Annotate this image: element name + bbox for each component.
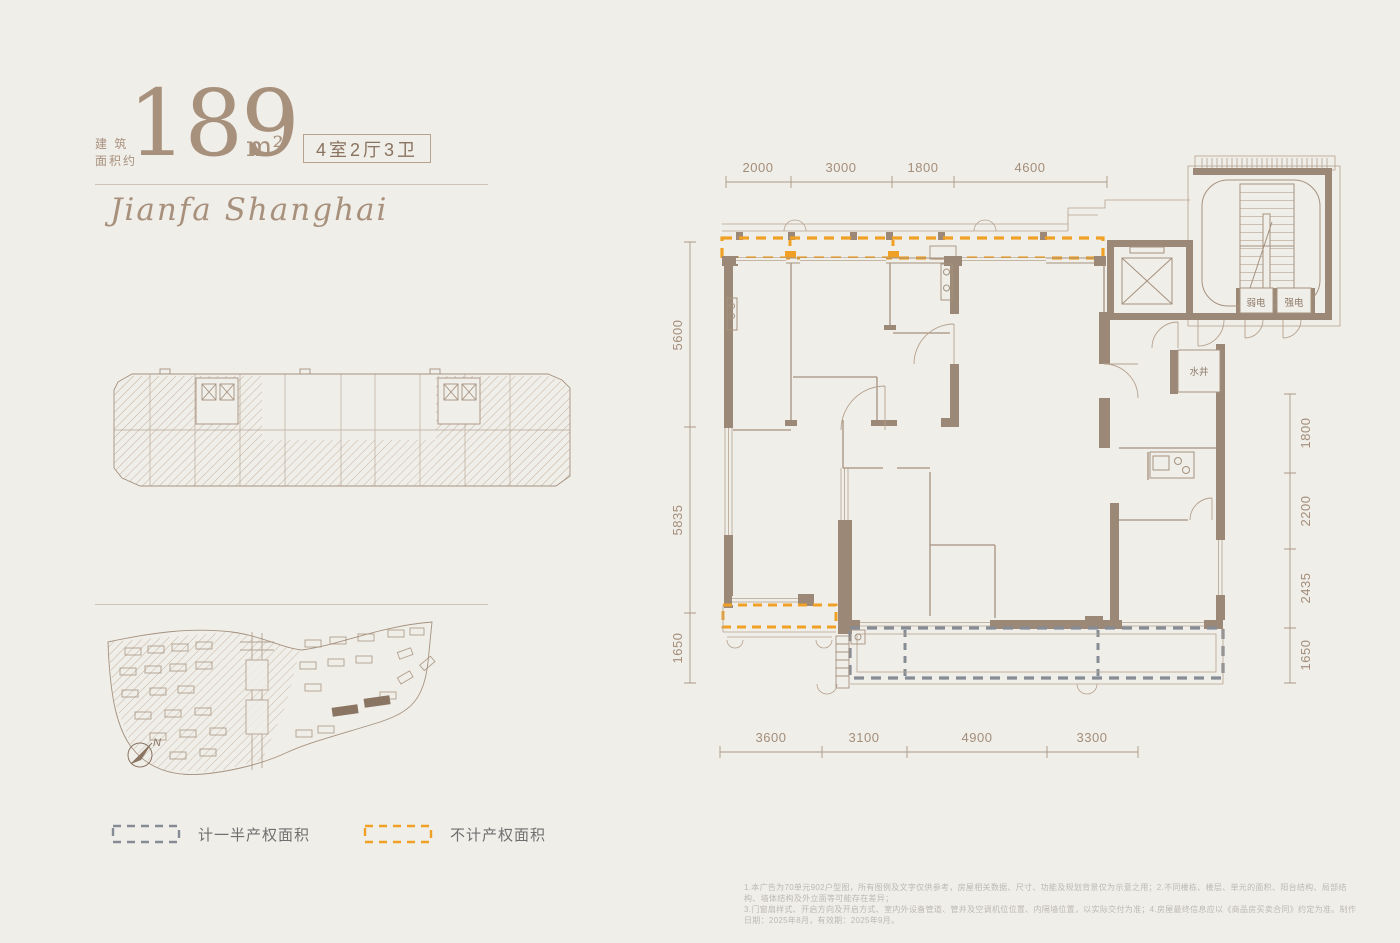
highlighted-building: [332, 704, 359, 717]
dim-labels-bottom: 3600 3100 4900 3300: [756, 730, 1108, 745]
room-label-strong-electric: 强电: [1284, 297, 1304, 309]
room-label-weak-electric: 弱电: [1246, 297, 1266, 309]
svg-text:3100: 3100: [849, 730, 880, 745]
north-label: N: [153, 737, 161, 749]
legend-no-property-swatch: [362, 823, 434, 845]
dim-labels-left: 5600 5835 1650: [670, 320, 685, 664]
svg-text:4600: 4600: [1015, 160, 1046, 175]
svg-text:4900: 4900: [962, 730, 993, 745]
svg-text:3300: 3300: [1077, 730, 1108, 745]
disclaimer-line1: 1.本广告为70单元902户型图，所有图例及文字仅供参考，房屋相关数据、尺寸、功…: [744, 882, 1360, 904]
site-plan: N: [95, 610, 450, 795]
room-label-water-shaft: 水井: [1189, 366, 1208, 378]
svg-text:3600: 3600: [756, 730, 787, 745]
disclaimer-line2: 3.门窗扇样式、开启方向及开启方式、室内外设备管道、管井及空调机位位置、内隔墙位…: [744, 904, 1360, 926]
svg-text:1800: 1800: [1298, 418, 1313, 449]
area-unit: m²: [246, 130, 284, 163]
layout-badge: 4室2厅3卫: [303, 134, 431, 163]
highlighted-building: [364, 695, 391, 708]
legend: 计一半产权面积 不计产权面积: [110, 823, 582, 845]
brand-script: Jianfa Shanghai: [110, 192, 388, 228]
floor-plan: 2000 3000 1800 4600 5600 5835 1650 1800 …: [640, 130, 1360, 800]
dim-labels-top: 2000 3000 1800 4600: [743, 160, 1046, 175]
kitchen-fixtures: [727, 264, 1194, 478]
balcony-bottom-left-not-counted: [723, 605, 836, 648]
header-divider: [95, 184, 488, 185]
legend-no-property-label: 不计产权面积: [450, 824, 546, 845]
dim-labels-right: 1800 2200 2435 1650: [1298, 418, 1313, 671]
disclaimer: 1.本广告为70单元902户型图，所有图例及文字仅供参考，房屋相关数据、尺寸、功…: [744, 882, 1360, 926]
svg-text:2200: 2200: [1298, 496, 1313, 527]
balcony-bottom-half-counted: [817, 628, 1223, 694]
svg-text:1800: 1800: [908, 160, 939, 175]
svg-text:5835: 5835: [670, 505, 685, 536]
dim-chain-top: [726, 176, 1107, 188]
svg-text:1650: 1650: [670, 633, 685, 664]
building-key-plan: [100, 360, 580, 495]
svg-text:5600: 5600: [670, 320, 685, 351]
dim-chain-left: [684, 242, 696, 683]
svg-text:3000: 3000: [826, 160, 857, 175]
legend-half-property-label: 计一半产权面积: [198, 824, 310, 845]
dim-chain-right: [1284, 394, 1296, 683]
legend-half-property-swatch: [110, 823, 182, 845]
door-swings: [841, 320, 1301, 520]
balcony-top-not-counted: [722, 238, 1103, 259]
svg-text:1650: 1650: [1298, 640, 1313, 671]
svg-text:2435: 2435: [1298, 573, 1313, 604]
svg-text:2000: 2000: [743, 160, 774, 175]
dim-chain-bottom: [720, 746, 1138, 758]
section-divider: [95, 604, 488, 605]
